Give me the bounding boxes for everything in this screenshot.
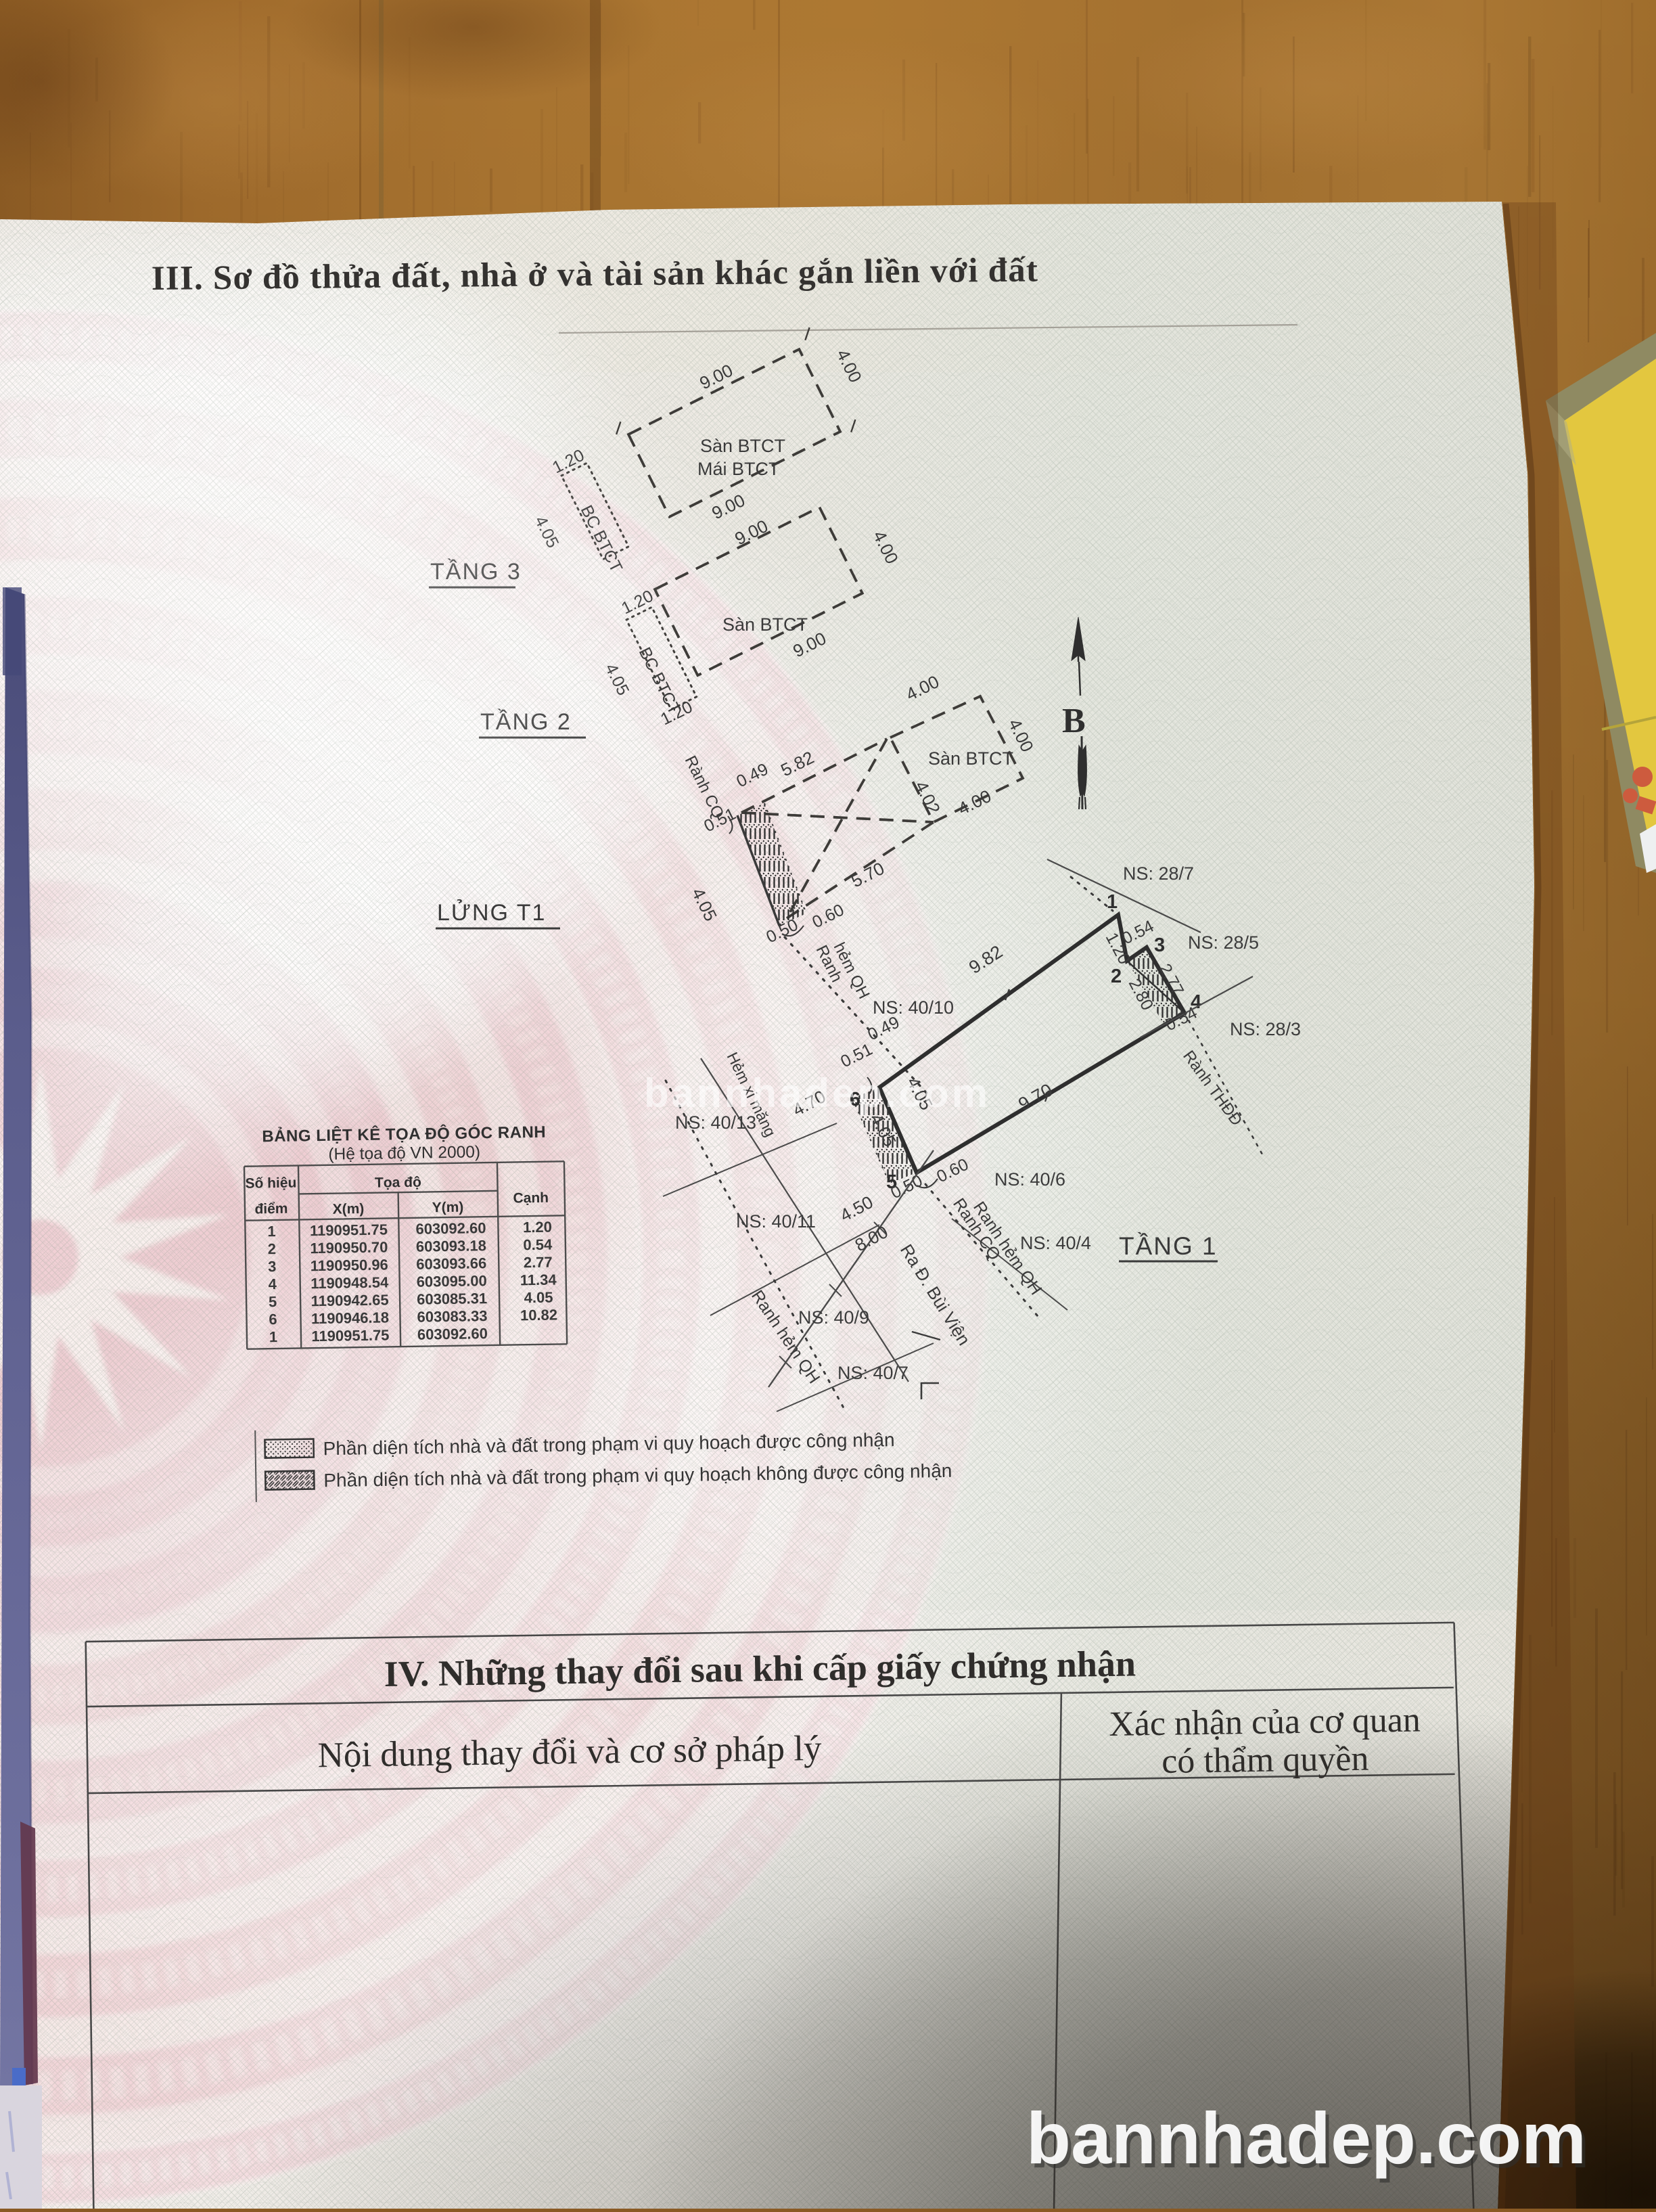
svg-text:2.77: 2.77 — [524, 1254, 553, 1271]
svg-text:603085.31: 603085.31 — [417, 1290, 487, 1308]
svg-text:Tọa độ: Tọa độ — [375, 1175, 421, 1191]
svg-text:603092.60: 603092.60 — [415, 1219, 486, 1238]
svg-text:603093.66: 603093.66 — [416, 1255, 486, 1273]
svg-text:B: B — [1062, 702, 1086, 740]
svg-text:(Hệ tọa độ VN 2000): (Hệ tọa độ VN 2000) — [328, 1143, 480, 1164]
svg-text:NS: 40/9: NS: 40/9 — [798, 1307, 869, 1328]
svg-text:NS: 28/5: NS: 28/5 — [1188, 932, 1259, 953]
svg-text:11.34: 11.34 — [520, 1271, 557, 1288]
svg-text:603095.00: 603095.00 — [417, 1272, 487, 1290]
svg-text:bannhadep.com: bannhadep.com — [1026, 2097, 1586, 2179]
svg-text:bannhadep.com: bannhadep.com — [644, 1070, 990, 1116]
svg-text:X(m): X(m) — [332, 1201, 364, 1217]
svg-text:Sàn BTCT: Sàn BTCT — [928, 748, 1013, 769]
svg-text:1190951.75: 1190951.75 — [311, 1326, 389, 1345]
svg-text:603083.33: 603083.33 — [417, 1307, 487, 1326]
svg-text:NS: 40/4: NS: 40/4 — [1020, 1233, 1091, 1253]
svg-text:1: 1 — [267, 1223, 276, 1240]
svg-text:1190946.18: 1190946.18 — [311, 1309, 389, 1327]
svg-text:Mái BTCT: Mái BTCT — [697, 459, 780, 479]
svg-text:2: 2 — [268, 1240, 277, 1257]
svg-text:Cạnh: Cạnh — [513, 1190, 549, 1206]
svg-text:10.82: 10.82 — [520, 1306, 557, 1324]
svg-text:NS: 28/3: NS: 28/3 — [1230, 1019, 1301, 1039]
svg-text:NS: 40/10: NS: 40/10 — [873, 997, 954, 1018]
svg-text:Số hiệu: Số hiệu — [245, 1175, 296, 1192]
svg-text:4.05: 4.05 — [524, 1289, 553, 1307]
svg-text:NS: 28/7: NS: 28/7 — [1123, 863, 1194, 884]
svg-text:điểm: điểm — [254, 1201, 287, 1217]
svg-text:NS: 40/7: NS: 40/7 — [837, 1363, 908, 1383]
svg-text:5: 5 — [269, 1293, 277, 1310]
svg-text:1190942.65: 1190942.65 — [310, 1291, 388, 1309]
svg-text:LỬNG T1: LỬNG T1 — [437, 900, 546, 926]
svg-text:NS: 40/11: NS: 40/11 — [736, 1211, 816, 1232]
svg-text:2: 2 — [1111, 966, 1122, 987]
svg-text:603092.60: 603092.60 — [417, 1325, 488, 1343]
svg-text:4: 4 — [268, 1276, 277, 1292]
svg-text:TẦNG 1: TẦNG 1 — [1119, 1232, 1218, 1260]
svg-text:Sàn BTCT: Sàn BTCT — [722, 614, 808, 635]
svg-text:Sàn BTCT: Sàn BTCT — [700, 436, 785, 456]
svg-text:3: 3 — [268, 1258, 277, 1275]
svg-text:603093.18: 603093.18 — [416, 1237, 486, 1255]
svg-text:1.20: 1.20 — [523, 1219, 552, 1236]
svg-text:Y(m): Y(m) — [432, 1200, 463, 1216]
svg-text:1: 1 — [269, 1328, 278, 1345]
svg-text:6: 6 — [269, 1311, 277, 1328]
svg-text:1190951.75: 1190951.75 — [310, 1221, 388, 1239]
svg-text:3: 3 — [1154, 934, 1165, 956]
svg-text:NS: 40/6: NS: 40/6 — [994, 1169, 1065, 1190]
svg-text:1190950.70: 1190950.70 — [310, 1238, 388, 1257]
svg-text:1190948.54: 1190948.54 — [310, 1273, 389, 1292]
svg-text:1190950.96: 1190950.96 — [310, 1256, 388, 1274]
svg-text:0.54: 0.54 — [523, 1236, 553, 1254]
